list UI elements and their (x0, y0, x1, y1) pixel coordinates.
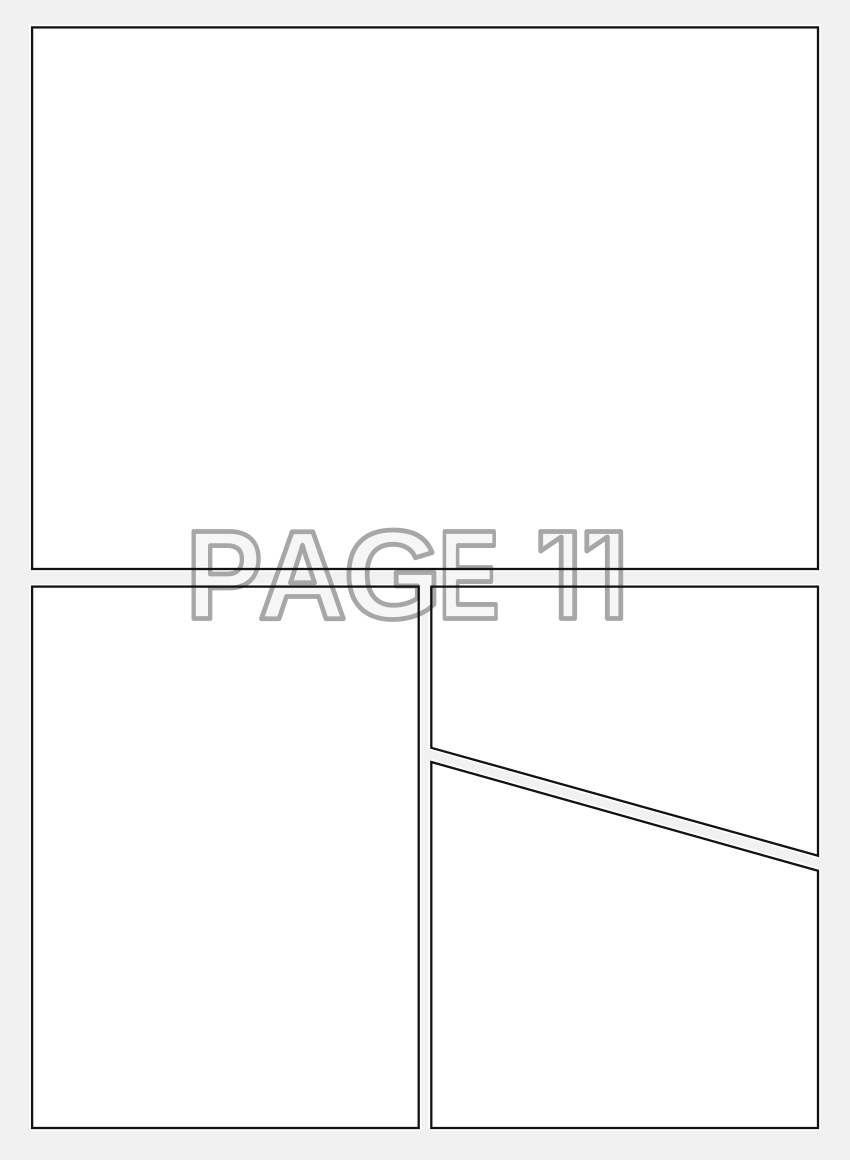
svg-text:G: G (344, 505, 442, 646)
svg-text:A: A (258, 506, 346, 646)
svg-text:P: P (186, 504, 262, 645)
svg-text:E: E (438, 505, 499, 645)
